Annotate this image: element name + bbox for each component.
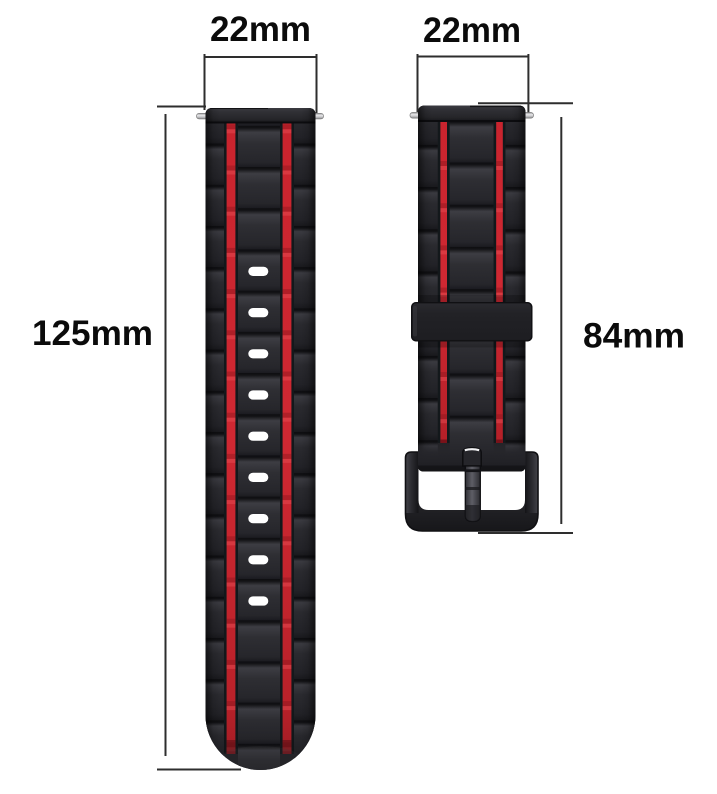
svg-text:22mm: 22mm	[423, 10, 521, 50]
svg-text:125mm: 125mm	[32, 313, 153, 353]
svg-text:84mm: 84mm	[583, 316, 685, 356]
svg-text:22mm: 22mm	[210, 9, 311, 49]
